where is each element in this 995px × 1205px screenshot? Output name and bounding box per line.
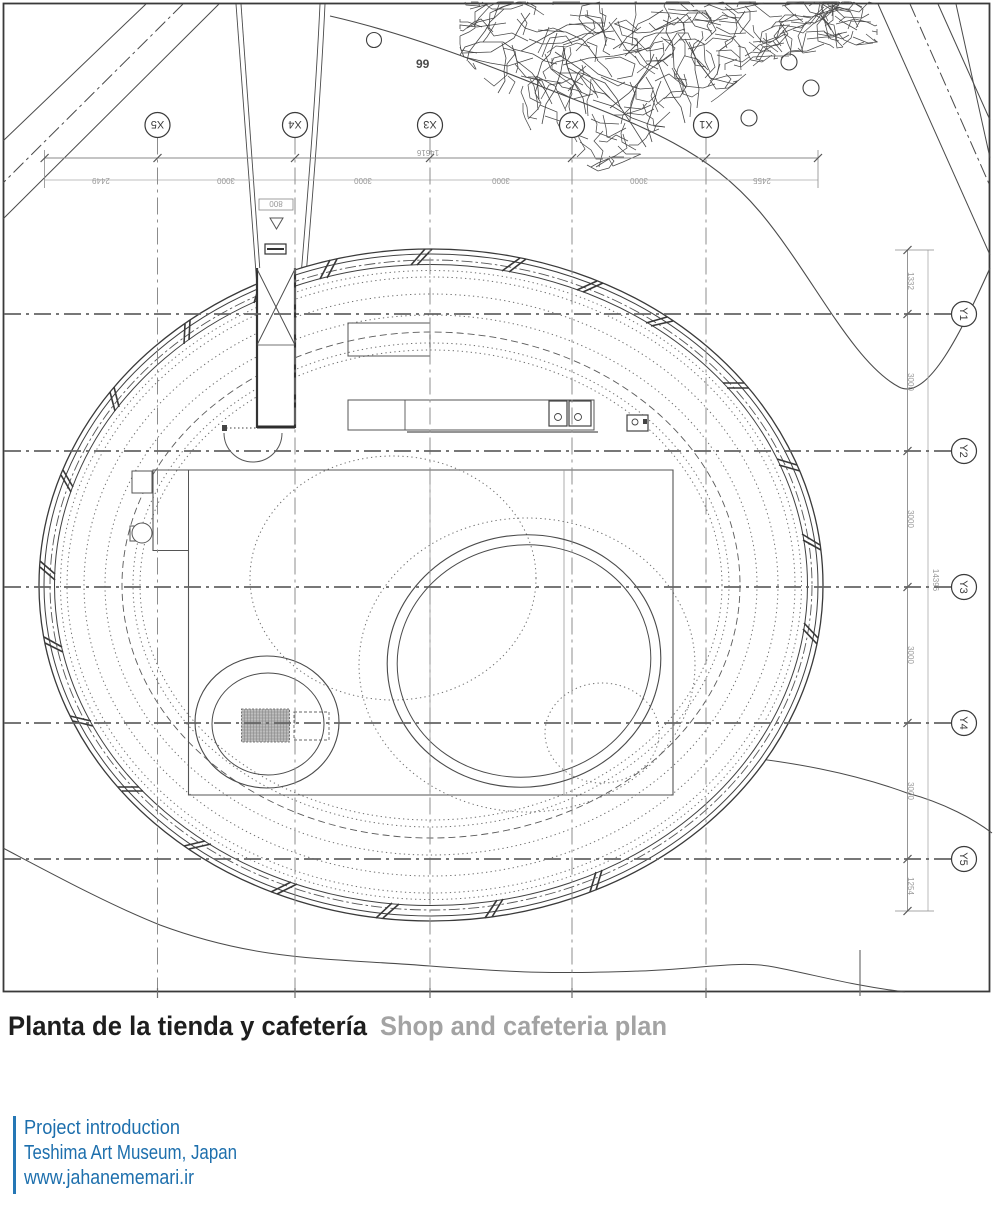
svg-text:Y1: Y1 <box>957 307 969 320</box>
svg-text:Teshima Art Museum, Japan: Teshima Art Museum, Japan <box>24 1142 237 1164</box>
svg-text:3000: 3000 <box>354 176 372 185</box>
svg-text:2449: 2449 <box>92 176 110 185</box>
svg-text:99: 99 <box>416 57 430 71</box>
svg-text:X3: X3 <box>423 118 436 130</box>
svg-text:3000: 3000 <box>906 510 915 528</box>
svg-text:X1: X1 <box>699 118 712 130</box>
svg-text:3000: 3000 <box>217 176 235 185</box>
svg-text:3000: 3000 <box>906 373 915 391</box>
svg-text:2455: 2455 <box>753 176 771 185</box>
svg-text:14616: 14616 <box>416 148 439 157</box>
svg-text:Y4: Y4 <box>957 716 969 729</box>
svg-text:1254: 1254 <box>906 877 915 895</box>
svg-text:14396: 14396 <box>931 569 940 592</box>
svg-text:Y5: Y5 <box>957 852 969 865</box>
svg-text:3000: 3000 <box>630 176 648 185</box>
svg-text:Planta de la tienda y cafeterí: Planta de la tienda y cafetería <box>8 1011 368 1041</box>
svg-text:Y2: Y2 <box>957 444 969 457</box>
svg-text:Project introduction: Project introduction <box>24 1117 180 1139</box>
svg-text:3000: 3000 <box>906 646 915 664</box>
svg-text:www.jahanememari.ir: www.jahanememari.ir <box>23 1167 194 1189</box>
svg-text:1332: 1332 <box>906 272 915 290</box>
svg-text:Shop and cafeteria plan: Shop and cafeteria plan <box>380 1011 667 1041</box>
svg-text:X5: X5 <box>151 118 164 130</box>
svg-text:Y3: Y3 <box>957 580 969 593</box>
svg-text:3000: 3000 <box>492 176 510 185</box>
svg-text:X4: X4 <box>288 118 301 130</box>
svg-text:800: 800 <box>269 199 283 208</box>
svg-text:3000: 3000 <box>906 782 915 800</box>
svg-text:X2: X2 <box>565 118 578 130</box>
